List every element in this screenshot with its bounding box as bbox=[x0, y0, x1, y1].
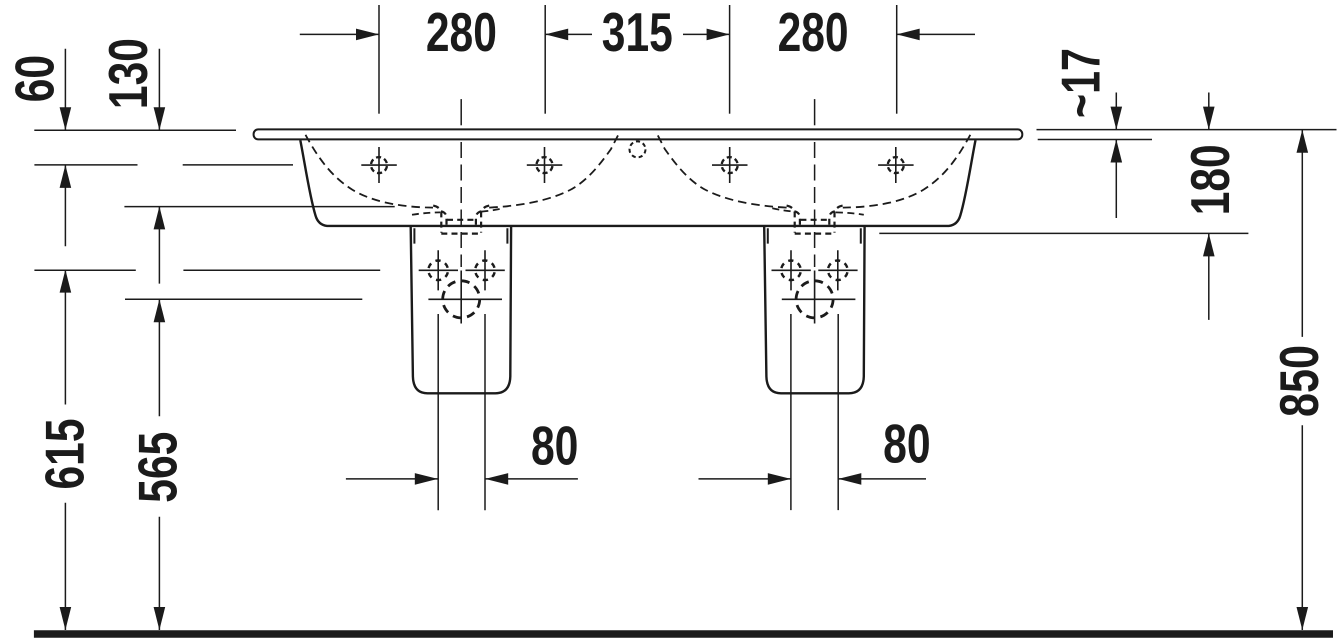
svg-text:315: 315 bbox=[602, 1, 673, 63]
svg-text:280: 280 bbox=[778, 1, 849, 63]
svg-text:615: 615 bbox=[34, 419, 96, 490]
svg-text:180: 180 bbox=[1179, 144, 1241, 215]
svg-text:565: 565 bbox=[127, 432, 189, 503]
svg-text:~17: ~17 bbox=[1050, 48, 1112, 118]
svg-text:280: 280 bbox=[426, 1, 497, 63]
svg-text:60: 60 bbox=[4, 55, 66, 103]
svg-text:850: 850 bbox=[1268, 345, 1330, 417]
svg-text:80: 80 bbox=[883, 413, 931, 475]
svg-text:130: 130 bbox=[97, 38, 159, 109]
svg-text:80: 80 bbox=[531, 415, 579, 477]
